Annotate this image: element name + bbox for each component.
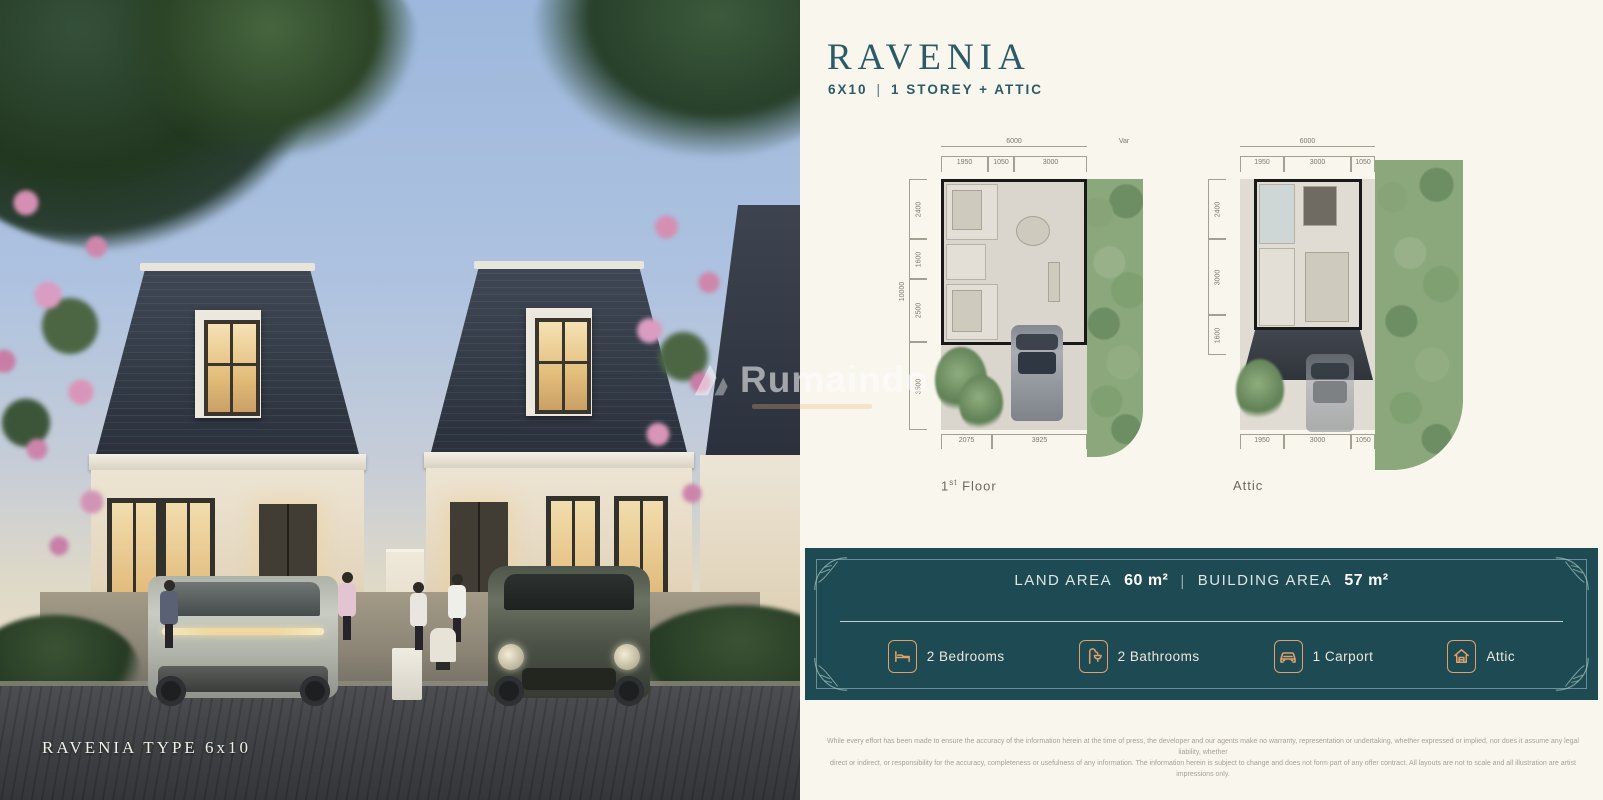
furniture-dining [1016, 216, 1050, 246]
land-area-label: LAND AREA [1014, 572, 1112, 589]
stairs [1303, 186, 1337, 226]
brochure-page: RAVENIA TYPE 6x10 Rumaindo RAVENIA 6X10 … [0, 0, 1603, 800]
plan-lot [941, 179, 1087, 430]
first-floor-label: 1st Floor [941, 478, 997, 493]
furniture-bed [952, 290, 982, 332]
area-separator: | [1180, 573, 1185, 590]
room-bathroom [946, 244, 986, 280]
dim-bottom-segments: 2075 3925 [941, 434, 1087, 449]
feature-bathrooms: 2 Bathrooms [1079, 640, 1200, 673]
dim-left-total: 10000 [899, 282, 906, 301]
subtitle-separator: | [877, 82, 883, 97]
car-grill [522, 668, 616, 690]
furniture-kitchen [1048, 262, 1060, 302]
attic-plan: 6000 1950 3000 1050 2400 3000 1600 [1205, 138, 1465, 508]
person [160, 580, 178, 650]
car-wheel [156, 676, 186, 706]
room-bathroom [1259, 184, 1295, 244]
bed-icon [888, 640, 917, 673]
subtitle-type: 1 STOREY + ATTIC [891, 82, 1043, 97]
stroller [430, 628, 456, 662]
feature-carport: 1 Carport [1274, 640, 1374, 673]
car-lightbar [162, 628, 324, 635]
features-row: 2 Bedrooms 2 Bathrooms 1 Carport Attic [805, 640, 1598, 673]
bathroom-icon [1079, 640, 1108, 673]
plan-tree [959, 375, 1003, 431]
first-floor-plan: 6000 Var 1950 1050 3000 10000 2400 1600 … [895, 138, 1165, 508]
room-bathroom [1259, 248, 1295, 326]
car-headlight [614, 644, 640, 670]
dim-top-segments: 1950 3000 1050 [1240, 156, 1375, 172]
feature-attic: Attic [1447, 640, 1515, 673]
plan-walls [941, 179, 1087, 345]
car-wheel [614, 676, 644, 706]
car-windshield [166, 582, 320, 616]
attic-icon [1447, 640, 1476, 673]
page-subtitle: 6X10 | 1 STOREY + ATTIC [828, 82, 1043, 97]
plan-greenery [1375, 160, 1463, 470]
dim-top-var: Var [1091, 138, 1157, 145]
car-wheel [300, 676, 330, 706]
attic-label: Attic [1233, 478, 1263, 493]
parcel-box [392, 648, 422, 700]
plan-tree [1236, 359, 1284, 421]
dim-top-segments: 1950 1050 3000 [941, 156, 1087, 172]
area-row: LAND AREA 60 m² | BUILDING AREA 57 m² [805, 572, 1598, 590]
person [338, 572, 356, 646]
land-area-value: 60 m² [1124, 572, 1168, 590]
dormer-window [535, 318, 591, 414]
subtitle-size: 6X10 [828, 82, 868, 97]
plan-walls [1254, 179, 1362, 330]
dormer [195, 310, 261, 418]
spec-banner: LAND AREA 60 m² | BUILDING AREA 57 m² 2 … [805, 548, 1598, 700]
building-area-label: BUILDING AREA [1198, 572, 1333, 589]
plan-greenery [1087, 179, 1143, 457]
house-photo: RAVENIA TYPE 6x10 [0, 0, 800, 800]
dormer [526, 308, 592, 416]
photo-caption: RAVENIA TYPE 6x10 [42, 738, 251, 758]
page-title: RAVENIA [827, 36, 1031, 79]
building-area-value: 57 m² [1344, 572, 1388, 590]
mini-car [488, 566, 650, 698]
pink-flowers [0, 150, 180, 590]
plan-car [1011, 325, 1063, 421]
person [410, 582, 427, 652]
disclaimer-line2: direct or indirect, or responsibility fo… [818, 758, 1588, 780]
car-headlight [498, 644, 524, 670]
plan-car [1306, 354, 1354, 432]
dim-left-segments: 2400 3000 1600 [1208, 179, 1226, 355]
disclaimer-line1: While every effort has been made to ensu… [818, 736, 1588, 758]
car-windshield [504, 574, 634, 610]
feature-bedrooms: 2 Bedrooms [888, 640, 1005, 673]
tree-canopy [530, 0, 800, 160]
banner-divider [840, 621, 1563, 622]
car-icon [1274, 640, 1303, 673]
car-wheel [494, 676, 524, 706]
pink-flowers [590, 190, 760, 560]
dim-bottom-segments: 1950 3000 1050 [1240, 434, 1375, 449]
dormer-window [204, 320, 260, 416]
furniture-bed [952, 190, 982, 230]
dim-left-segments: 2400 1600 2500 3500 [909, 179, 927, 430]
furniture-bed [1305, 252, 1349, 322]
plan-lot [1240, 179, 1375, 430]
disclaimer: While every effort has been made to ensu… [818, 736, 1588, 780]
